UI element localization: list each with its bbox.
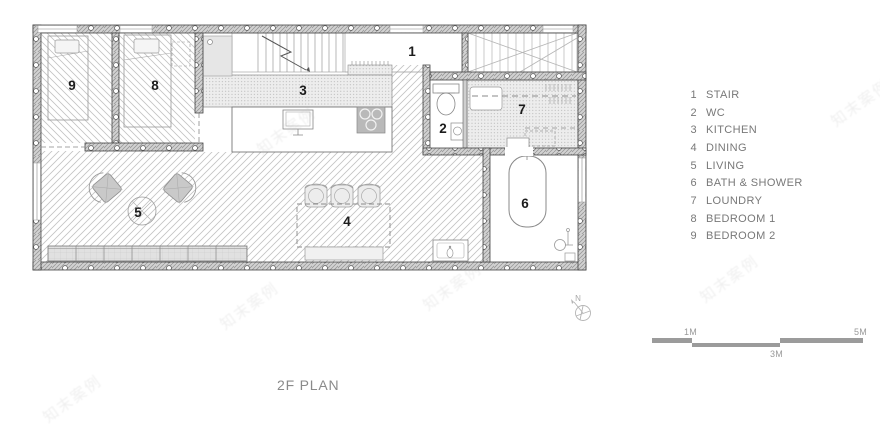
scale-label-3m: 3M: [770, 349, 783, 359]
room-label-bath: 6: [521, 196, 529, 211]
room-label-dining: 4: [343, 214, 351, 229]
wall-wc-north: [430, 72, 586, 80]
room-label-wc: 2: [439, 121, 447, 136]
wall-right: [578, 25, 586, 270]
room-label-loundry: 7: [518, 102, 526, 117]
legend-number: 9: [688, 230, 697, 242]
legend-number: 5: [688, 160, 697, 172]
wall-top: [33, 25, 586, 33]
legend-item: 3KITCHEN: [688, 121, 803, 139]
bathtub: [509, 149, 546, 227]
wall-bedrooms-south: [85, 143, 203, 151]
scale-bar-segment: [780, 338, 863, 343]
legend-number: 8: [688, 213, 697, 225]
wall-bedroom1-east: [195, 33, 203, 113]
legend-item: 4DINING: [688, 139, 803, 157]
legend-label: KITCHEN: [706, 124, 757, 136]
floor-drain: [565, 253, 575, 261]
kitchen-side-floor: [392, 65, 423, 262]
legend-number: 1: [688, 89, 697, 101]
legend-label: LIVING: [706, 160, 744, 172]
void-area: [468, 33, 577, 72]
legend-label: BEDROOM 2: [706, 230, 776, 242]
scale-bar-segment: [652, 338, 692, 343]
door-gap-bath: [505, 147, 533, 156]
bench: [48, 246, 247, 261]
pillow: [134, 39, 159, 53]
wall-bath-west: [483, 148, 490, 262]
room-label-living: 5: [134, 205, 142, 220]
wall-wc-west: [423, 65, 430, 154]
legend-number: 6: [688, 177, 697, 189]
wall-left: [33, 25, 41, 270]
legend-item: 2WC: [688, 104, 803, 122]
legend-item: 8BEDROOM 1: [688, 210, 803, 228]
floor-plan-page: 1 2 3 4 5 6 7 8 9 N 1STAIR 2WC 3KITCHEN …: [0, 0, 880, 431]
legend-item: 6BATH & SHOWER: [688, 174, 803, 192]
stair-treads: [232, 33, 345, 72]
wall-bedroom-divider: [112, 33, 119, 143]
page-title: 2F PLAN: [277, 377, 339, 393]
legend-label: BATH & SHOWER: [706, 177, 803, 189]
legend-label: BEDROOM 1: [706, 213, 776, 225]
pillow: [55, 40, 79, 53]
cooktop: [357, 107, 385, 133]
legend-label: WC: [706, 107, 725, 119]
living-floor: [41, 151, 203, 262]
wc-basin: [451, 123, 464, 140]
scale-label-5m: 5M: [854, 327, 867, 337]
legend-item: 1STAIR: [688, 86, 803, 104]
room-label-kitchen: 3: [299, 83, 307, 98]
legend-label: LOUNDRY: [706, 195, 762, 207]
pantry-counter: [203, 36, 232, 76]
sideboard: [305, 247, 383, 260]
legend-item: 7LOUNDRY: [688, 192, 803, 210]
legend-label: DINING: [706, 142, 747, 154]
wall-wc-loundry: [463, 80, 467, 148]
room-label-bedroom2: 9: [68, 78, 76, 93]
legend-number: 4: [688, 142, 697, 154]
legend-item: 5LIVING: [688, 157, 803, 175]
legend-number: 7: [688, 195, 697, 207]
legend-item: 9BEDROOM 2: [688, 228, 803, 246]
wall-bottom: [33, 262, 586, 270]
legend-label: STAIR: [706, 89, 740, 101]
kitchen-island: [232, 107, 392, 152]
legend: 1STAIR 2WC 3KITCHEN 4DINING 5LIVING 6BAT…: [688, 86, 803, 245]
scale-label-1m: 1M: [684, 327, 697, 337]
north-arrow-icon: N: [571, 294, 591, 321]
vanity-basin: [433, 240, 468, 261]
legend-number: 2: [688, 107, 697, 119]
legend-number: 3: [688, 124, 697, 136]
loundry-counter: [470, 87, 502, 110]
wall-loundry-south: [423, 148, 586, 155]
room-label-stair: 1: [408, 44, 416, 59]
north-label: N: [575, 294, 581, 303]
scale-bar-segment: [692, 343, 780, 348]
room-label-bedroom1: 8: [151, 78, 159, 93]
